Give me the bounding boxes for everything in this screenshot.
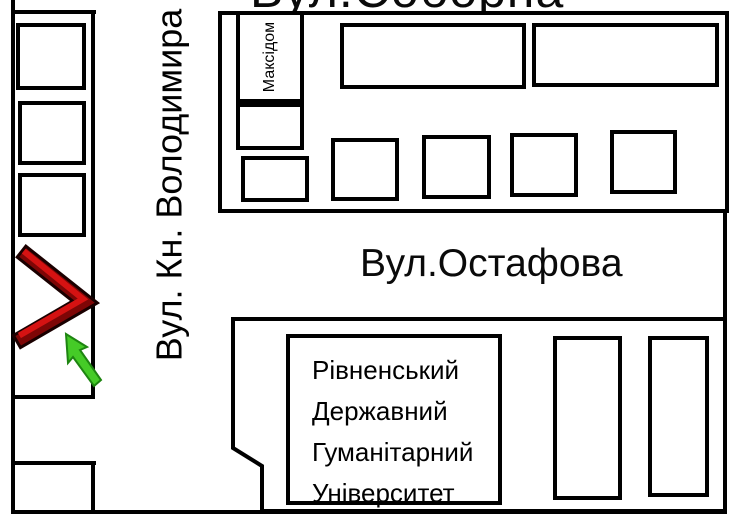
street-label-volodymyra: Вул. Кн. Володимира: [116, 20, 222, 350]
university-building: Рівненський Державний Гуманітарний Уніве…: [286, 334, 502, 505]
left-strip-building-2: [18, 101, 86, 165]
top-block-square-building-1: [331, 138, 399, 201]
left-strip-building-3: [18, 173, 86, 237]
bottom-block-tall-building-2: [648, 336, 709, 497]
maksidom-building: Максідом: [236, 11, 304, 103]
university-label-line2: Державний: [312, 391, 498, 432]
top-block-square-building-2: [422, 135, 491, 199]
left-strip-top-edge: [11, 10, 96, 14]
university-label-line1: Рівненський: [312, 350, 498, 391]
left-strip-lower-right-edge: [91, 461, 95, 513]
street-map: Вул.Соборна Вул. Кн. Володимира Вул.Оста…: [0, 0, 735, 530]
location-chevron-icon: [22, 253, 85, 338]
top-block-wide-building-2: [532, 23, 719, 87]
bottom-block-tall-building-1: [553, 336, 622, 500]
top-block-small-building-2: [241, 156, 309, 202]
left-strip-divider: [11, 395, 95, 399]
left-border-line: [11, 0, 15, 514]
top-block-small-building-1: [236, 103, 304, 150]
left-strip-right-edge: [91, 10, 95, 399]
top-block-square-building-4: [610, 130, 677, 194]
left-strip-building-1: [16, 23, 86, 90]
top-block-square-building-3: [510, 133, 578, 197]
university-label-line4: Університет: [312, 473, 498, 514]
top-block-wide-building-1: [340, 23, 526, 89]
left-strip-lower-top-edge: [13, 461, 96, 465]
university-label-line3: Гуманітарний: [312, 432, 498, 473]
maksidom-label: Максідом: [261, 22, 279, 92]
street-label-ostafova: Вул.Остафова: [360, 242, 623, 286]
pointer-arrow-icon: [66, 334, 101, 386]
